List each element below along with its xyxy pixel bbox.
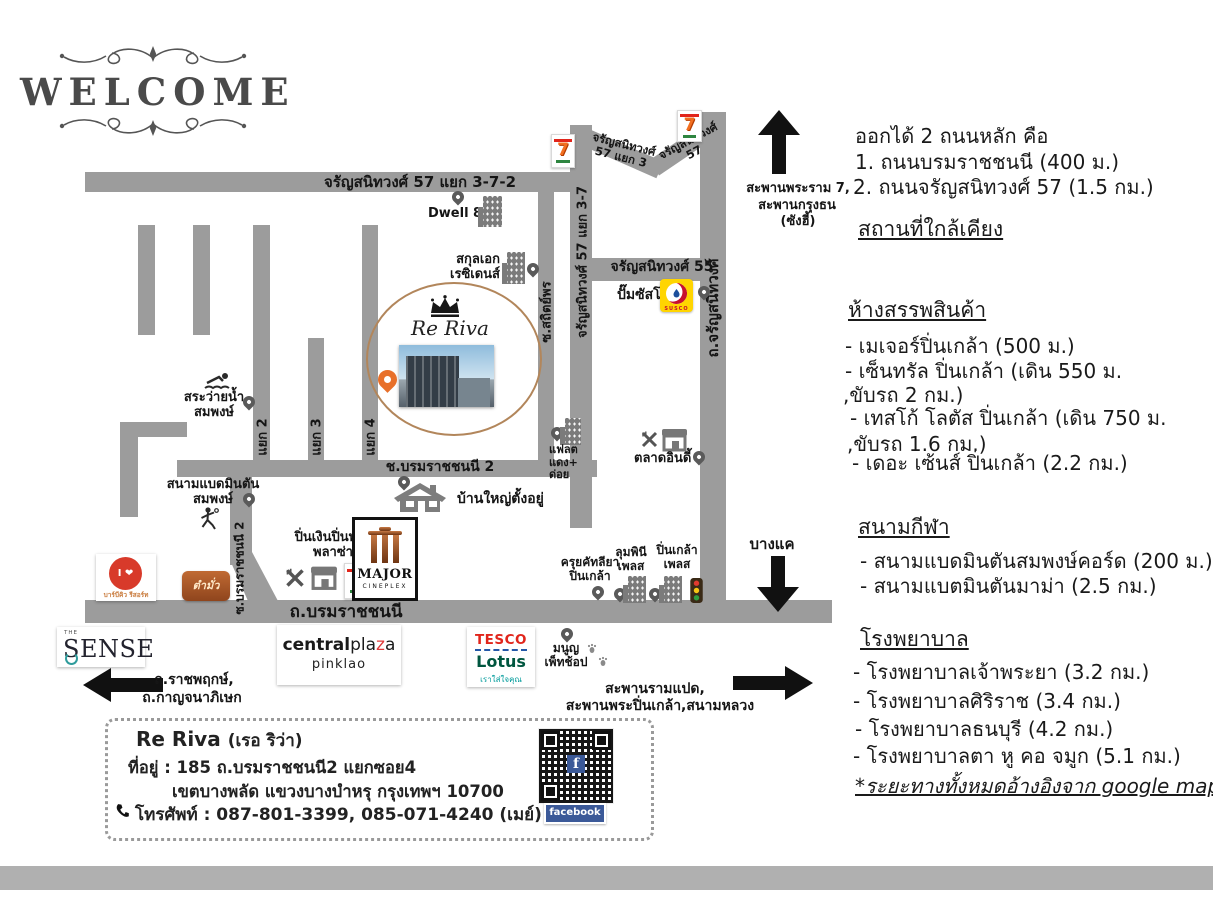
re-riva-photo bbox=[399, 345, 494, 407]
west-label-1: ถ.ราชพฤกษ์, bbox=[154, 672, 233, 688]
road-label-soi-borom2: ช.บรมราชชนนี 2 bbox=[386, 459, 495, 475]
traffic-light-icon bbox=[688, 577, 705, 604]
map-flyer: WELCOME จรัญสนิทวงศ์ 57 แยก 3-7-2 ถ.บรมร… bbox=[0, 0, 1213, 900]
dwell-building-icon bbox=[483, 196, 502, 227]
north-label-1: สะพานพระราม 7, bbox=[746, 182, 850, 197]
flourish-bottom-icon bbox=[48, 112, 258, 138]
lotus-wordmark: Lotus bbox=[467, 652, 535, 671]
the-sense-logo: THE SENSE bbox=[57, 627, 145, 667]
road-label-charan57-37: จรัญสนิทวงศ์ 57 แยก 3-7 bbox=[572, 186, 593, 338]
road-label-yaek3: แยก 3 bbox=[306, 418, 327, 455]
sakul-ek-building-icon bbox=[507, 252, 525, 284]
susco-logo: SUSCO bbox=[660, 279, 693, 312]
paw-prints-icon bbox=[587, 643, 609, 669]
badminton-player-icon bbox=[196, 506, 222, 532]
major-gate-icon bbox=[365, 527, 405, 563]
bbq-logo-circle: I ❤ bbox=[109, 557, 142, 590]
khrui-label: ครุยคัทลียา ปิ่นเกล้า bbox=[561, 556, 620, 584]
sports-heading: สนามกีฬา bbox=[858, 511, 950, 544]
east-label-2: สะพานพระปิ่นเกล้า,สนามหลวง bbox=[566, 698, 754, 714]
road-label-soi-borom2-vert: ซ.บรมราชชนนี 2 bbox=[231, 521, 250, 614]
susco-logo-text: SUSCO bbox=[660, 306, 693, 312]
plaza-word-b: a bbox=[385, 635, 395, 655]
exit-option-2: 2. ถนนจรัญสนิทวงศ์ 57 (1.5 กม.) bbox=[853, 171, 1154, 203]
utensils-icon bbox=[640, 430, 659, 449]
nearby-heading: สถานที่ใกล้เคียง bbox=[858, 213, 1003, 246]
facebook-f-icon: f bbox=[567, 755, 585, 773]
distance-note: *ระยะทางทั้งหมดอ้างอิงจาก google map* bbox=[855, 770, 1213, 802]
north-label-3: (ซังฮี้) bbox=[781, 215, 816, 230]
sense-swirl-icon bbox=[65, 652, 78, 665]
centralplaza-logo: centralplaza pinklao bbox=[277, 625, 401, 685]
seven-eleven-logo-1: 7 bbox=[551, 134, 575, 168]
utensils-icon-plaza bbox=[284, 567, 306, 589]
bbq-restaurant-logo: I ❤ บาร์บีคิว รีสอร์ท bbox=[96, 554, 156, 601]
tesco-dashes bbox=[475, 649, 527, 651]
welcome-title: WELCOME bbox=[20, 70, 296, 114]
big-house-label: บ้านใหญ่ตั้งอยู่ bbox=[457, 491, 544, 507]
west-label-2: ถ.กาญจนาภิเษก bbox=[142, 690, 241, 706]
pinklao-place-label: ปิ่นเกล้า เพลส bbox=[656, 544, 697, 572]
pinklao-word: pinklao bbox=[277, 657, 401, 672]
south-label: บางแค bbox=[750, 536, 795, 553]
hospital-item: - โรงพยาบาลตา หู คอ จมูก (5.1 กม.) bbox=[853, 740, 1181, 772]
info-title-thai: (เรอ ริว่า) bbox=[228, 731, 303, 751]
major-cineplex-logo: MAJOR CINEPLEX bbox=[352, 517, 418, 601]
sakul-ek-label: สกุลเอก เรซิเดนส์ bbox=[440, 253, 500, 283]
hospital-item: - โรงพยาบาลเจ้าพระยา (3.2 กม.) bbox=[853, 656, 1149, 688]
malls-heading: ห้างสรรพสินค้า bbox=[848, 294, 986, 327]
flourish-top-icon bbox=[48, 44, 258, 70]
info-address-1: ที่อยู่ : 185 ถ.บรมราชชนนี2 แยกซอย4 bbox=[128, 755, 416, 781]
facebook-qr-code: f bbox=[538, 728, 614, 804]
swimmer-icon bbox=[203, 371, 233, 391]
manun-label: มนูญ เพ็ทช้อป bbox=[545, 642, 588, 670]
facebook-label: facebook bbox=[544, 803, 606, 824]
crown-icon bbox=[428, 295, 462, 318]
seven-eleven-logo-2: 7 bbox=[677, 110, 702, 142]
bbq-logo-caption: บาร์บีคิว รีสอร์ท bbox=[96, 590, 156, 600]
arrow-north-icon bbox=[758, 110, 800, 174]
info-title: Re Riva (เรอ ริว่า) bbox=[136, 727, 303, 754]
pool-label: สระว่ายน้ำ สมพงษ์ bbox=[184, 391, 244, 421]
road-label-charan-main: ถ.จรัญสนิทวงศ์ bbox=[701, 259, 725, 358]
lumpini-building-icon bbox=[628, 576, 646, 603]
road-label-yaek2: แยก 2 bbox=[252, 418, 273, 455]
sport-item: - สนามแบตมินตันมาม่า (2.5 กม.) bbox=[860, 570, 1157, 602]
central-word: central bbox=[283, 635, 351, 655]
re-riva-script-title: Re Riva bbox=[411, 316, 489, 340]
shop-icon-market bbox=[661, 427, 688, 452]
arrow-east-icon bbox=[733, 666, 813, 700]
flat-building-icon bbox=[565, 418, 581, 445]
road-label-yaek4: แยก 4 bbox=[360, 418, 381, 455]
pinklao-place-building-icon bbox=[664, 576, 682, 603]
shop-icon-plaza bbox=[310, 564, 338, 591]
tesco-slogan: เราใส่ใจคุณ bbox=[467, 673, 535, 686]
tam-restaurant-logo: ตำมั่ว bbox=[182, 571, 230, 601]
arrow-south-icon bbox=[757, 556, 799, 612]
road-label-borom-main: ถ.บรมราชชนนี bbox=[290, 603, 403, 623]
cineplex-wordmark: CINEPLEX bbox=[362, 583, 407, 590]
house-icon bbox=[392, 481, 448, 513]
contact-info-box: Re Riva (เรอ ริว่า) ที่อยู่ : 185 ถ.บรมร… bbox=[105, 718, 654, 841]
tesco-lotus-logo: TESCO Lotus เราใส่ใจคุณ bbox=[467, 627, 535, 687]
plaza-word-a: pla bbox=[350, 635, 376, 655]
road-label-charan55: จรัญสนิทวงศ์ 55 bbox=[611, 259, 714, 275]
hospitals-heading: โรงพยาบาล bbox=[860, 623, 969, 656]
tesco-wordmark: TESCO bbox=[467, 632, 535, 648]
info-phone: โทรศัพท์ : 087-801-3399, 085-071-4240 (เ… bbox=[135, 801, 542, 828]
lumpini-label: ลุมพินี เพลส bbox=[615, 546, 646, 574]
flat-label: แฟลต แดง+ ด่อย bbox=[549, 444, 578, 482]
mall-item: - เดอะ เซ้นส์ ปิ่นเกล้า (2.2 กม.) bbox=[852, 447, 1128, 479]
bottom-divider-bar bbox=[0, 866, 1213, 890]
market-label: ตลาดอินดี้ bbox=[634, 452, 691, 467]
road-label-top: จรัญสนิทวงศ์ 57 แยก 3-7-2 bbox=[324, 174, 516, 191]
plaza-word-z: z bbox=[376, 635, 385, 655]
phone-icon bbox=[115, 803, 132, 820]
north-label-2: สะพานกรุงธน bbox=[758, 199, 836, 214]
road-label-sathit-phon: ซ.สถิตย์พร bbox=[536, 281, 557, 342]
east-label-1: สะพานรามแปด, bbox=[605, 681, 705, 697]
major-wordmark: MAJOR bbox=[357, 567, 412, 582]
